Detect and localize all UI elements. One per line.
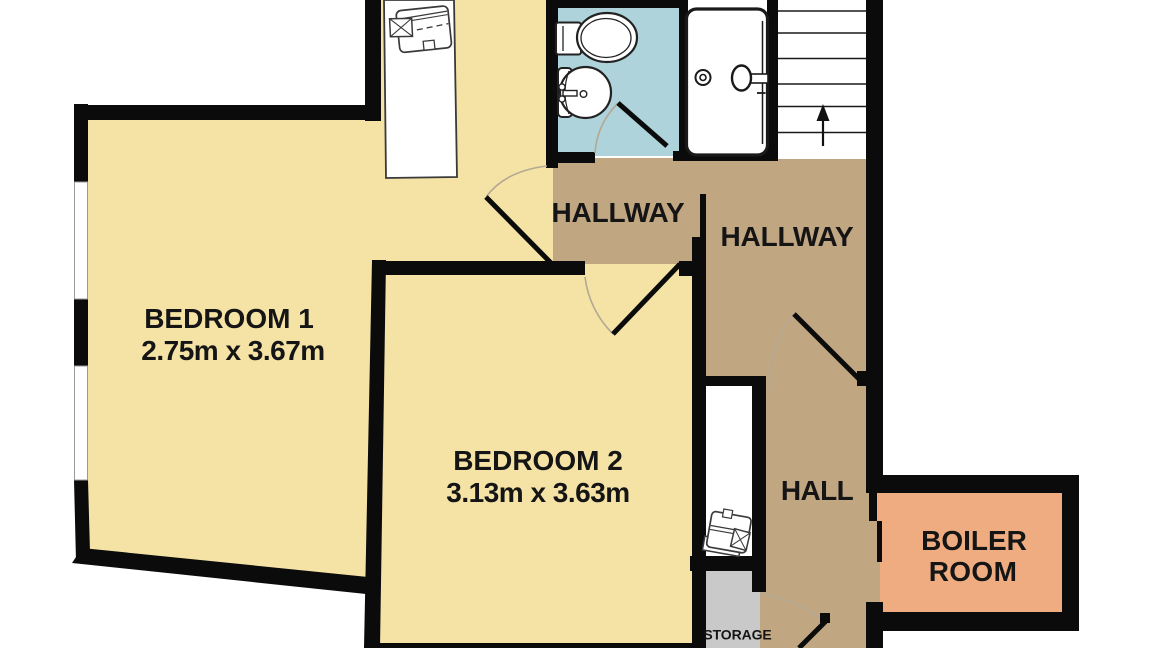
svg-text:HALL: HALL <box>781 475 854 506</box>
svg-text:3.13m x 3.63m: 3.13m x 3.63m <box>446 477 629 508</box>
svg-text:STORAGE: STORAGE <box>703 627 771 643</box>
svg-text:BEDROOM 1: BEDROOM 1 <box>144 303 314 334</box>
svg-text:ROOM: ROOM <box>929 556 1018 587</box>
svg-text:HALLWAY: HALLWAY <box>552 197 685 228</box>
svg-text:HALLWAY: HALLWAY <box>721 221 854 252</box>
svg-text:2.75m x 3.67m: 2.75m x 3.67m <box>141 335 324 366</box>
svg-text:BEDROOM 2: BEDROOM 2 <box>453 445 623 476</box>
svg-text:BOILER: BOILER <box>921 525 1027 556</box>
